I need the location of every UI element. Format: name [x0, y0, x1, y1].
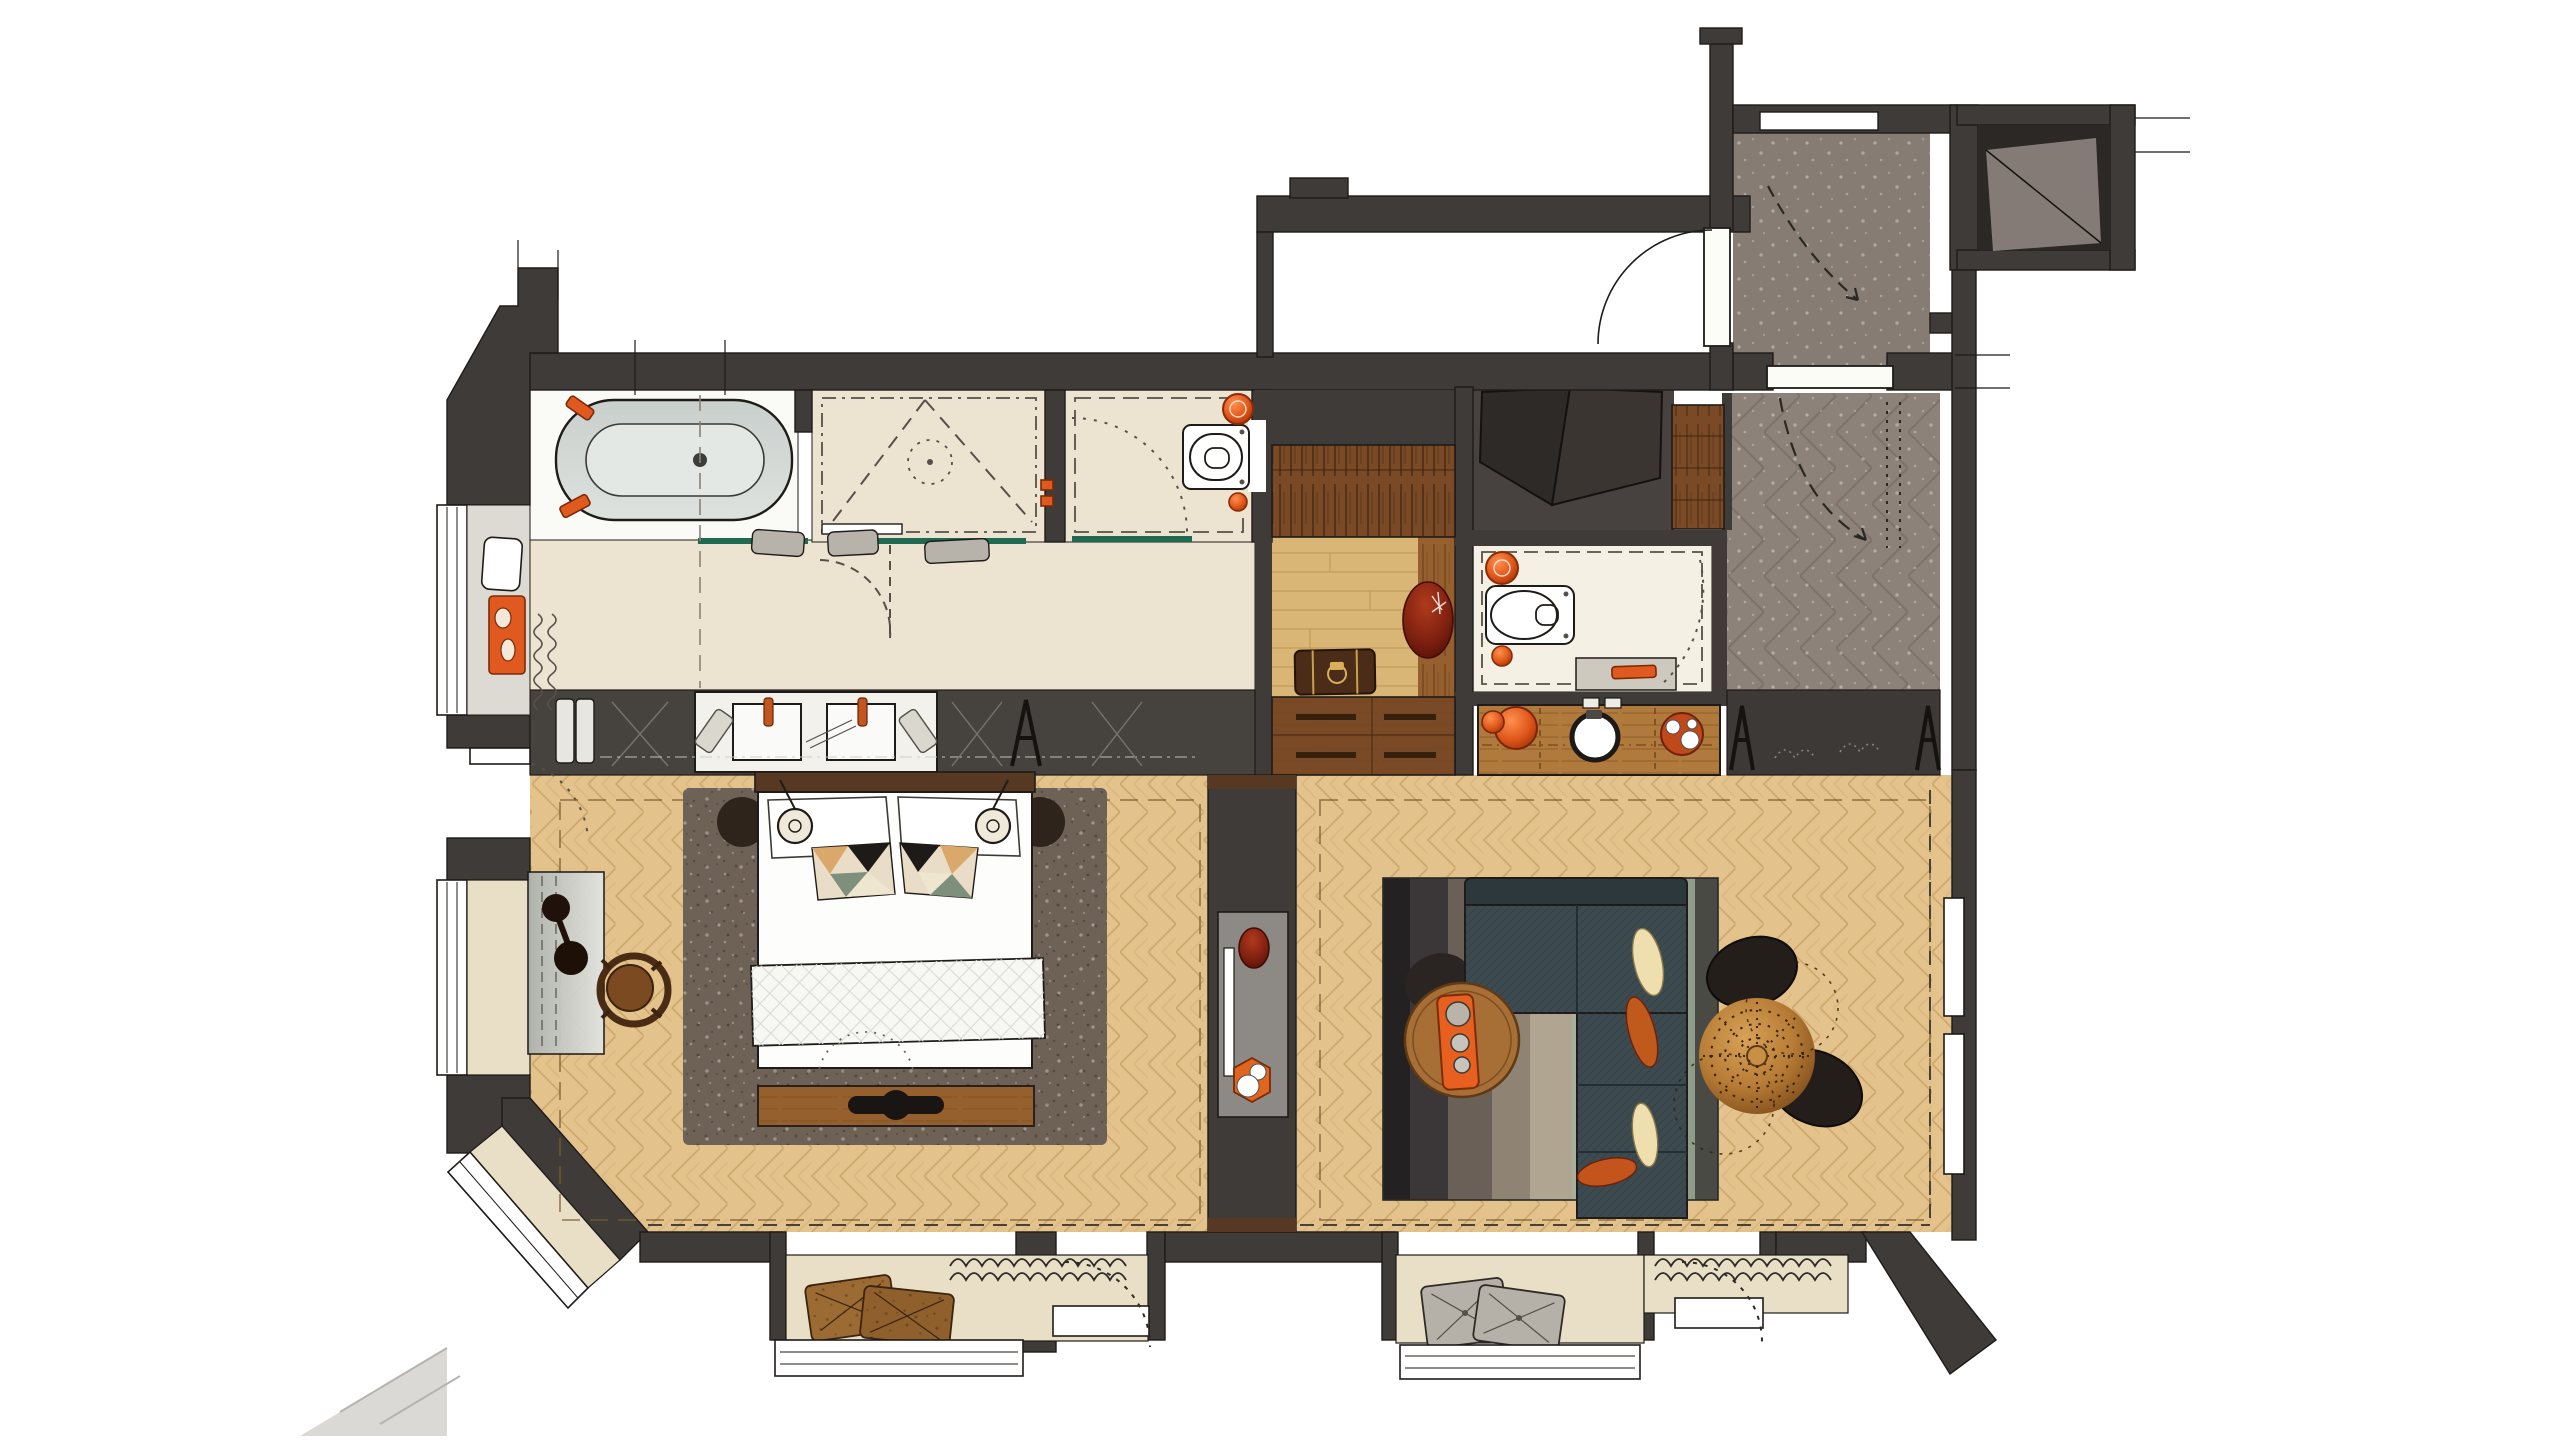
bathtub [556, 395, 792, 520]
wall-tub-shower-stub [795, 390, 812, 432]
wc-basin [1223, 394, 1253, 424]
wall-vestibule-cap [1700, 28, 1742, 44]
wall-chimney-bump [1290, 178, 1348, 198]
transom-window [1760, 112, 1878, 130]
bathroom-corridor-floor [530, 540, 1255, 692]
suite-entrance-door[interactable] [1704, 228, 1730, 346]
round-coffee-table [1405, 983, 1519, 1097]
stool-with-cups [1234, 1058, 1270, 1102]
drawer-handle [1384, 752, 1436, 758]
towel [924, 538, 989, 563]
wall-guest-wc-north [1455, 530, 1712, 546]
wall-above-wardrobe [1272, 390, 1455, 445]
foot-bench [758, 1086, 1034, 1126]
throw-cushion [900, 843, 978, 898]
window[interactable] [437, 505, 467, 715]
window[interactable] [775, 1340, 1023, 1376]
suite-entrance-door-swing [1598, 230, 1712, 344]
entry-hall-floor-speckle [1727, 393, 1940, 690]
wall-diagonal-se [1862, 1232, 1996, 1374]
wall-bottom-2 [1165, 1232, 1395, 1262]
double-vanity-counter [695, 692, 937, 772]
pier-bay1-left [770, 1232, 786, 1340]
bathroom-stool [481, 537, 523, 592]
drawer-handle [1296, 752, 1356, 758]
window-seat [1053, 1306, 1149, 1336]
window[interactable] [1944, 1034, 1964, 1174]
headboard [755, 772, 1035, 792]
creamer-icon [1482, 711, 1504, 733]
entry-south-band [1727, 690, 1940, 775]
wall-entry-east [1952, 270, 1976, 770]
window[interactable] [437, 880, 467, 1075]
teapot-icon [1446, 1002, 1470, 1026]
wall-shower-wc [1045, 390, 1065, 542]
wc-niche [1248, 420, 1266, 492]
drawer-handle [1384, 714, 1436, 720]
toilet [1183, 425, 1249, 489]
vestibule-floor-speckle [1733, 133, 1930, 367]
entry-closet-louver-door [1986, 138, 2101, 251]
suitcase [1295, 649, 1376, 694]
floor-plan-drawing [0, 0, 2560, 1440]
tv-partition [1208, 775, 1296, 1232]
wall-closet-east [2110, 105, 2135, 270]
cup-icon [1451, 1034, 1469, 1052]
wall-upper-band [1257, 196, 1750, 232]
shower-control-icon [1041, 496, 1053, 506]
shower-control-icon [1041, 480, 1053, 490]
wall-closet-north [1957, 105, 2135, 125]
guest-toilet [1486, 586, 1574, 644]
reading-sconce-icon [976, 809, 1010, 843]
wall-entry-north-right [1887, 353, 1955, 390]
bar-tap-icon [1586, 710, 1602, 719]
wall-guest-wc-east [1712, 530, 1727, 692]
desk-window-sill [467, 880, 530, 1075]
wc-glass-screen [1072, 536, 1192, 542]
minibar-console [1478, 698, 1720, 775]
wall-stub [1930, 313, 1954, 333]
desk [528, 872, 604, 1054]
faucet-icon [764, 698, 773, 726]
wall-vestibule-west-upper [1710, 42, 1733, 230]
bottom-bays [775, 1255, 1848, 1379]
drawer-handle [1296, 714, 1356, 720]
faucet-icon [858, 698, 867, 726]
wall-pier-left-1 [447, 715, 530, 748]
cup-icon [1454, 1057, 1470, 1073]
floor-plan-canvas [0, 0, 2560, 1440]
wall-pier-left-2 [447, 838, 530, 880]
dressing-rug [1403, 582, 1453, 658]
shelf-closet [1672, 405, 1724, 529]
vanity-cabinet-door [556, 699, 574, 763]
amenity-tray [489, 596, 525, 674]
window[interactable] [1400, 1345, 1640, 1379]
guest-basin [1486, 552, 1518, 584]
hand-towel [1612, 665, 1656, 679]
guest-wc-flush-icon [1492, 646, 1512, 666]
wall-vestibule-west-lower [1710, 343, 1733, 390]
wall-top-main [520, 353, 1733, 390]
vanity-cabinet-door [576, 699, 594, 763]
desk-lamp-icon [542, 894, 570, 922]
decor-vase [1239, 928, 1269, 968]
desk-lamp-shade [554, 941, 588, 975]
shower-floor [812, 390, 1045, 542]
tv-screen[interactable] [1224, 948, 1234, 1076]
bathroom-door-leaf [470, 748, 530, 764]
wall-closet-south [1957, 250, 2135, 270]
towel [751, 529, 805, 557]
wall-dressing-east [1455, 387, 1473, 775]
window-seat [1675, 1298, 1763, 1328]
throw-cushion [812, 843, 895, 900]
wc-flush-icon [1229, 493, 1247, 511]
reading-sconce-icon [778, 809, 812, 843]
bar-sink [1572, 714, 1618, 760]
wardrobe-lower [1272, 697, 1455, 775]
wall-bottom-1 [640, 1232, 782, 1262]
wall-closet-west [1950, 105, 1978, 270]
window[interactable] [1944, 898, 1964, 1016]
towel [827, 530, 878, 557]
entry-inner-door[interactable] [1767, 366, 1893, 388]
wall-connector [1257, 232, 1273, 357]
